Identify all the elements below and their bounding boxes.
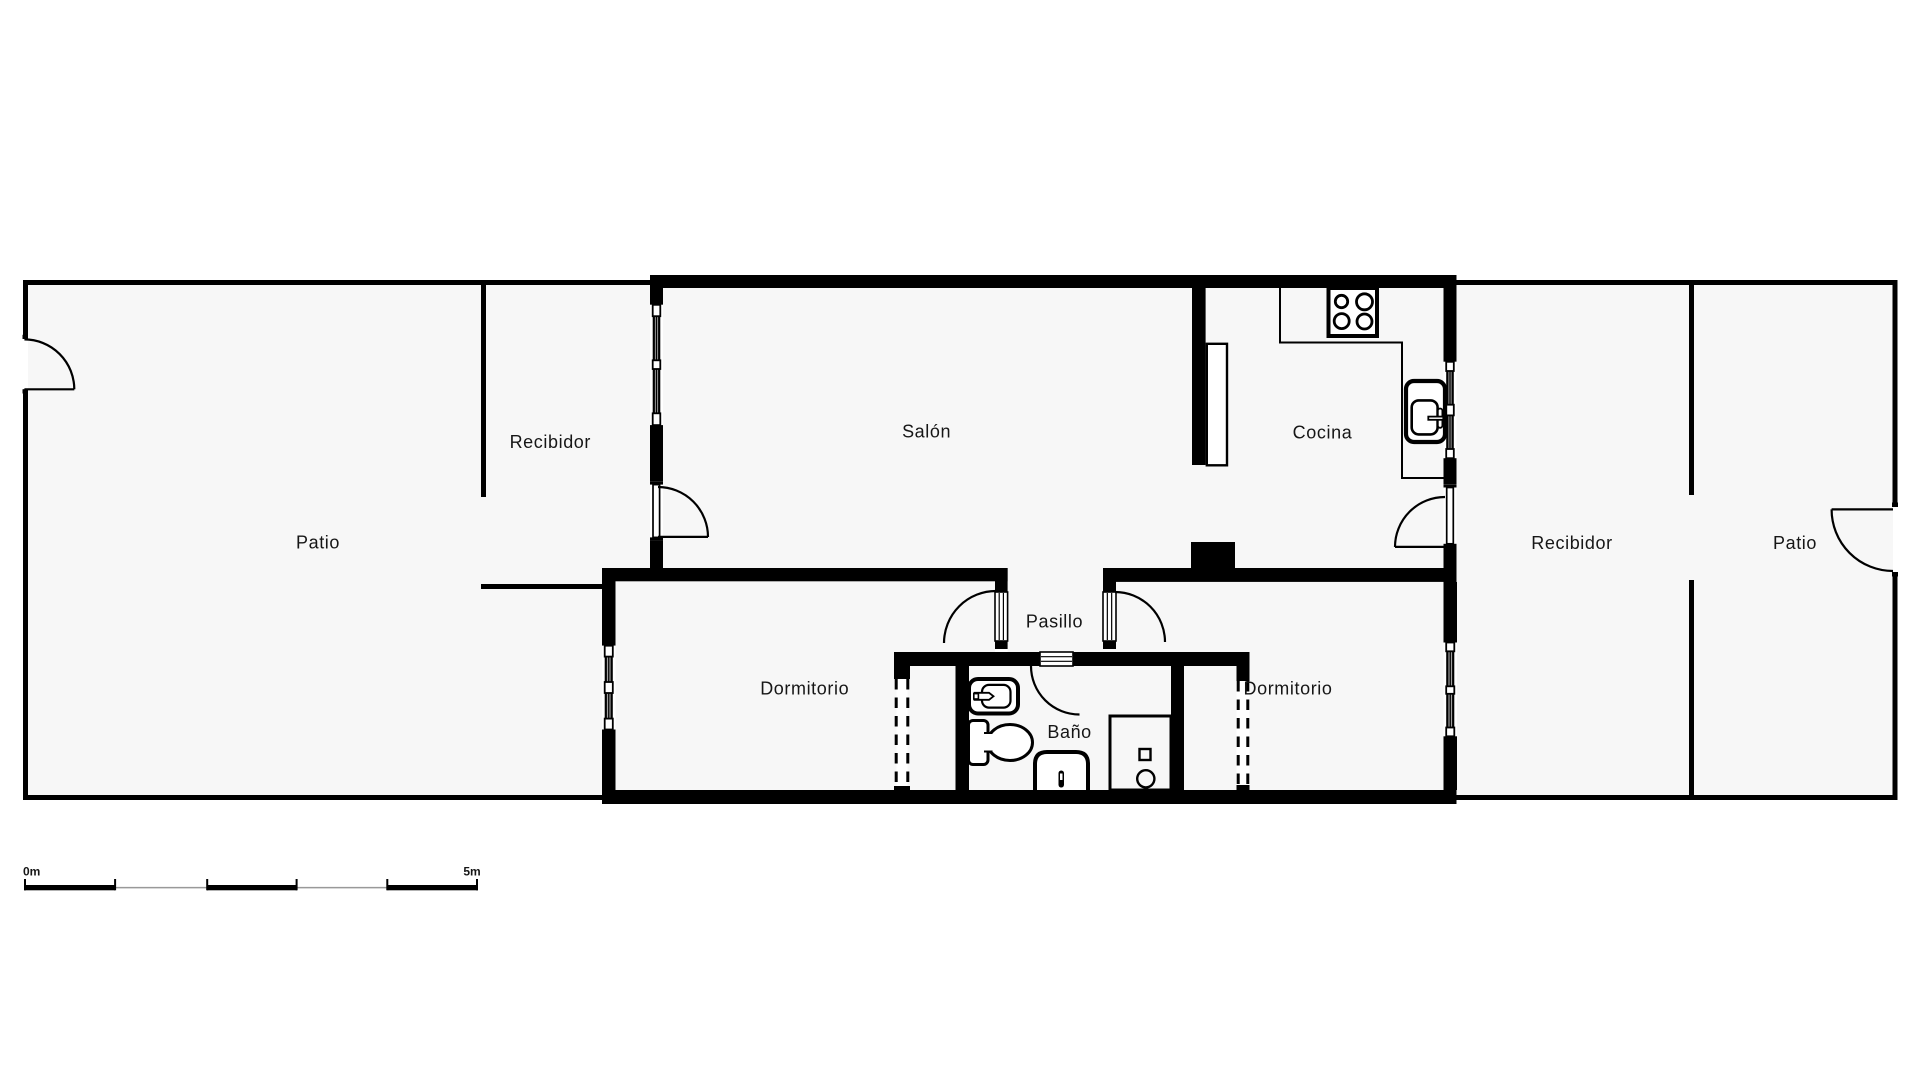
svg-text:5m: 5m	[463, 865, 480, 879]
svg-text:Recibidor: Recibidor	[510, 432, 591, 452]
svg-text:Recibidor: Recibidor	[1531, 533, 1612, 553]
svg-text:Dormitorio: Dormitorio	[1243, 679, 1332, 699]
svg-text:Pasillo: Pasillo	[1026, 612, 1083, 632]
svg-text:0m: 0m	[23, 865, 40, 879]
svg-text:Cocina: Cocina	[1293, 422, 1353, 442]
svg-text:Salón: Salón	[902, 421, 951, 441]
svg-text:Baño: Baño	[1047, 722, 1091, 742]
svg-text:Dormitorio: Dormitorio	[760, 679, 849, 699]
svg-text:Patio: Patio	[296, 533, 340, 553]
svg-text:Patio: Patio	[1773, 533, 1817, 553]
